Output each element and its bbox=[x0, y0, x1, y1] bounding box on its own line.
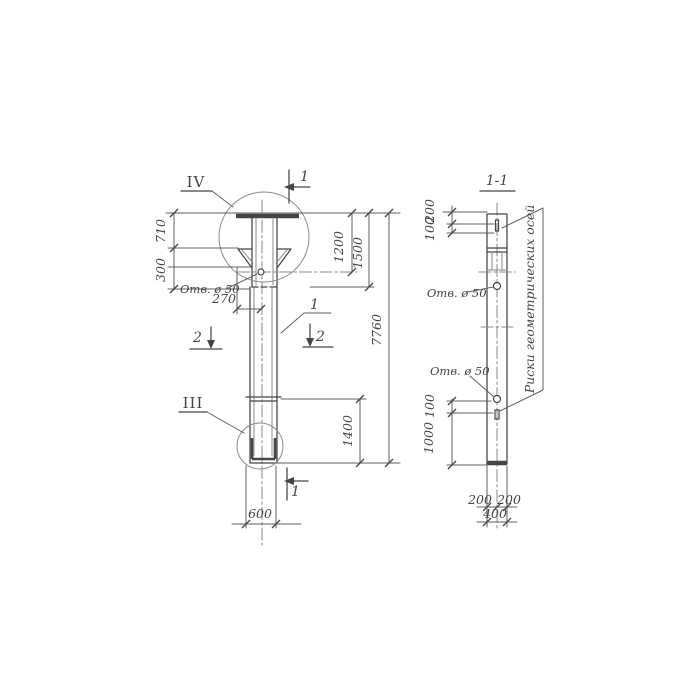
dim-710: 710 bbox=[153, 219, 168, 243]
dim-200-left: 200 bbox=[467, 492, 492, 507]
detail-III-leader bbox=[207, 412, 244, 433]
section-lower-dims: 100 1000 bbox=[421, 394, 493, 465]
hole-label-lower: Отв. ø 50 bbox=[430, 364, 494, 397]
section-mark-1-bottom: 1 bbox=[284, 468, 308, 500]
axes-note-text: Риски геометрических осей bbox=[522, 205, 537, 395]
dim-300: 300 bbox=[153, 258, 168, 282]
section-title: 1-1 bbox=[480, 173, 515, 191]
left-view: IV III 1 1 2 2 bbox=[153, 169, 400, 545]
part-callout-label: 1 bbox=[310, 297, 319, 313]
section-2-right-label: 2 bbox=[315, 329, 325, 345]
hole-label-upper-text: Отв. ø 50 bbox=[427, 286, 487, 300]
section-top-dims: 200 100 bbox=[422, 199, 494, 241]
detail-label-III: III bbox=[179, 394, 244, 433]
hole-label-lower-leader bbox=[470, 376, 494, 397]
part-callout-1: 1 bbox=[281, 297, 331, 333]
dim-600: 600 bbox=[248, 506, 272, 521]
corbel-left bbox=[238, 249, 252, 268]
dim-1200: 1200 bbox=[331, 231, 346, 263]
section-hole-lower bbox=[494, 396, 501, 403]
corbel-right bbox=[277, 249, 291, 268]
detail-IV-text: IV bbox=[187, 173, 206, 191]
section-hole-upper bbox=[494, 283, 501, 290]
dim-100-mid: 100 bbox=[422, 394, 437, 418]
hole-label-lower-text: Отв. ø 50 bbox=[430, 364, 490, 378]
section-mark-2-left: 2 bbox=[190, 327, 222, 349]
drawing-sheet: IV III 1 1 2 2 bbox=[0, 0, 700, 700]
left-dim-chain bbox=[168, 213, 251, 290]
section-title-text: 1-1 bbox=[486, 173, 509, 189]
section-width-dims: 200 200 400 bbox=[467, 492, 521, 522]
column-inner-walls bbox=[254, 219, 273, 456]
dim-100-top: 100 bbox=[422, 217, 437, 241]
section-2-right-arrow bbox=[306, 338, 314, 347]
section-2-left-arrow bbox=[207, 340, 215, 349]
section-top-dim-lines bbox=[443, 206, 494, 233]
section-lower-dim-lines bbox=[447, 399, 493, 465]
hole-label-upper: Отв. ø 50 bbox=[427, 286, 493, 300]
dim-7760: 7760 bbox=[369, 314, 384, 346]
section-mark-2-right: 2 bbox=[303, 324, 333, 347]
joint-line-mid bbox=[246, 397, 281, 401]
dim-1400: 1400 bbox=[340, 415, 355, 447]
section-mark-1-top: 1 bbox=[284, 169, 310, 203]
detail-circle-top bbox=[219, 192, 309, 282]
section-1-1-view: 1-1 200 100 100 1000 200 2 bbox=[421, 173, 543, 530]
dim-1500: 1500 bbox=[350, 237, 365, 269]
detail-IV-leader bbox=[212, 191, 233, 207]
dim-270: 270 bbox=[211, 291, 236, 306]
pile-column-drawing: IV III 1 1 2 2 bbox=[0, 0, 700, 700]
detail-III-text: III bbox=[183, 394, 204, 412]
section-2-left-label: 2 bbox=[192, 330, 202, 346]
section-1-bottom-label: 1 bbox=[291, 484, 300, 500]
section-1-top-label: 1 bbox=[300, 169, 309, 185]
dim-1000: 1000 bbox=[421, 422, 436, 454]
hole-left-view bbox=[258, 269, 264, 275]
detail-label-IV: IV bbox=[181, 173, 233, 207]
